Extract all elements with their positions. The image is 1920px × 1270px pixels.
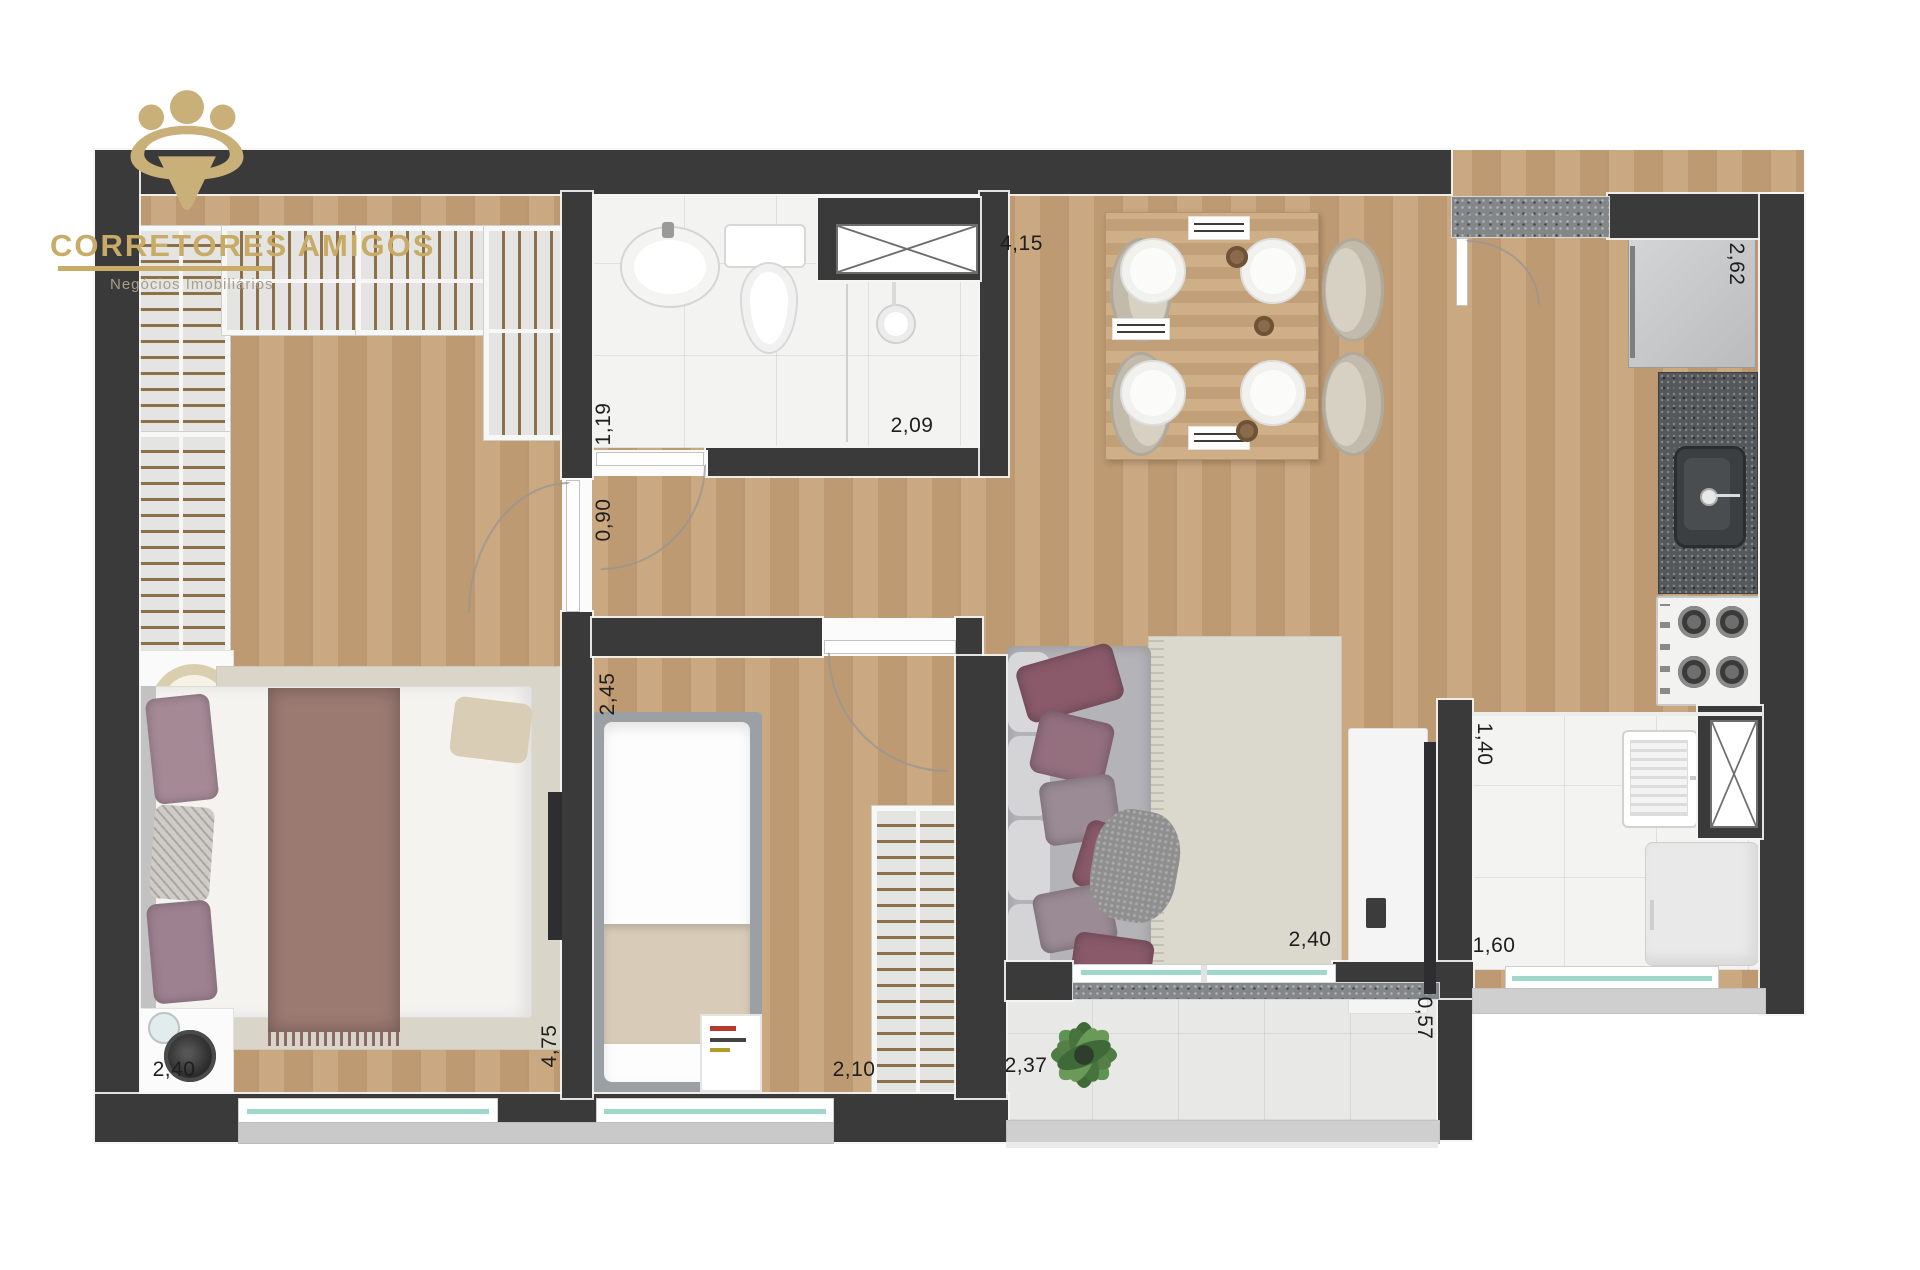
wall <box>1760 194 1804 1014</box>
wall <box>1438 700 1472 1140</box>
balcony-sill <box>1006 1120 1440 1144</box>
wall <box>562 612 592 1098</box>
burner-icon <box>1678 606 1710 638</box>
dim-kitchen-run: 2,62 <box>1724 238 1748 290</box>
tv-icon <box>1424 742 1436 994</box>
dim-living-width: 4,15 <box>1000 232 1052 256</box>
brand-name: CORRETORES AMIGOS <box>50 228 435 264</box>
dim-bath-width: 1,19 <box>592 398 616 450</box>
wall <box>1006 962 1072 1000</box>
cutlery-mat-icon <box>1112 318 1170 340</box>
plate-icon <box>1120 360 1186 426</box>
service-sill <box>1472 988 1766 1014</box>
shower-arm-icon <box>892 282 896 306</box>
duct-shaft-icon <box>1710 720 1758 828</box>
dim-balcony-width: 2,37 <box>1000 1054 1052 1078</box>
dim-service-width: 1,40 <box>1472 718 1496 770</box>
table-decor-icon <box>1226 246 1248 268</box>
table-decor-icon <box>1254 316 1274 336</box>
floor-plan-render: 4,15 2,62 1,19 2,09 0,90 2,45 2,40 4,75 … <box>0 0 1920 1270</box>
tank-basin-icon <box>1630 740 1688 816</box>
plate-icon <box>1240 360 1306 426</box>
duct-shaft-icon <box>836 224 978 274</box>
balcony-edge <box>1006 1142 1438 1148</box>
wall <box>592 618 822 656</box>
exterior-mask <box>1472 1014 1820 1194</box>
brand-underline <box>58 266 272 271</box>
wall <box>706 448 980 476</box>
brand-tagline: Negócios Imobiliários <box>110 276 274 293</box>
dining-chair-icon <box>1322 352 1384 456</box>
service-kitchen-threshold <box>1472 712 1762 716</box>
dim-hall-width: 0,90 <box>592 494 616 546</box>
shower-head-icon <box>876 304 916 344</box>
shower-divider-icon <box>846 284 848 442</box>
wall <box>562 192 592 478</box>
plate-icon <box>1120 238 1186 304</box>
closet-icon <box>128 432 230 666</box>
balcony-threshold <box>1072 982 1440 1000</box>
dim-bed1-width: 2,40 <box>148 1058 200 1082</box>
burner-icon <box>1716 656 1748 688</box>
wall <box>956 656 1006 1098</box>
dim-bed2-width: 2,45 <box>596 668 620 720</box>
sofa-back-cushion-icon <box>1008 820 1050 900</box>
dim-bed1-length: 4,75 <box>538 1020 562 1072</box>
window-icon <box>238 1098 498 1124</box>
window-icon <box>596 1098 834 1124</box>
pillow-icon <box>149 804 215 902</box>
dim-bath-length: 2,09 <box>886 414 938 438</box>
faucet-icon <box>1700 488 1718 506</box>
stove-knobs-icon <box>1660 604 1670 694</box>
burner-icon <box>1678 656 1710 688</box>
dim-service-length: 1,60 <box>1468 934 1520 958</box>
remote-icon <box>1366 898 1386 928</box>
fridge-handle-icon <box>1630 246 1635 358</box>
tv-icon <box>548 792 562 940</box>
faucet-arm-icon <box>1714 494 1740 497</box>
cutlery-mat-icon <box>1188 216 1250 240</box>
brand-logo: CORRETORES AMIGOS Negócios Imobiliários <box>30 70 390 310</box>
pillow-icon <box>145 693 220 805</box>
wall <box>956 618 982 656</box>
washer-lid-line-icon <box>1650 900 1654 930</box>
table-decor-icon <box>1236 420 1258 442</box>
washing-machine-icon <box>1645 842 1759 966</box>
folded-blanket-icon <box>449 695 534 764</box>
window-sill <box>238 1122 834 1144</box>
burner-icon <box>1716 606 1748 638</box>
wardrobe-rack-icon <box>872 806 964 1108</box>
dim-bed2-length: 2,10 <box>828 1058 880 1082</box>
pillow-icon <box>146 899 218 1004</box>
faucet-icon <box>662 222 674 238</box>
throw-fringe-icon <box>268 1032 400 1046</box>
plate-icon <box>1240 238 1306 304</box>
dining-chair-icon <box>1322 238 1384 342</box>
bed-throw-icon <box>268 688 400 1032</box>
bathroom-sink-icon <box>620 226 720 308</box>
entry-threshold <box>1451 196 1610 238</box>
poster-frame-icon <box>700 1014 762 1092</box>
sliding-door-icon <box>1072 964 1336 984</box>
brand-logo-icon <box>102 78 272 228</box>
dim-living-length: 2,40 <box>1284 928 1336 952</box>
closet-icon <box>484 226 574 440</box>
dim-service-depth: 0,57 <box>1412 992 1436 1044</box>
window-icon <box>1505 966 1719 990</box>
